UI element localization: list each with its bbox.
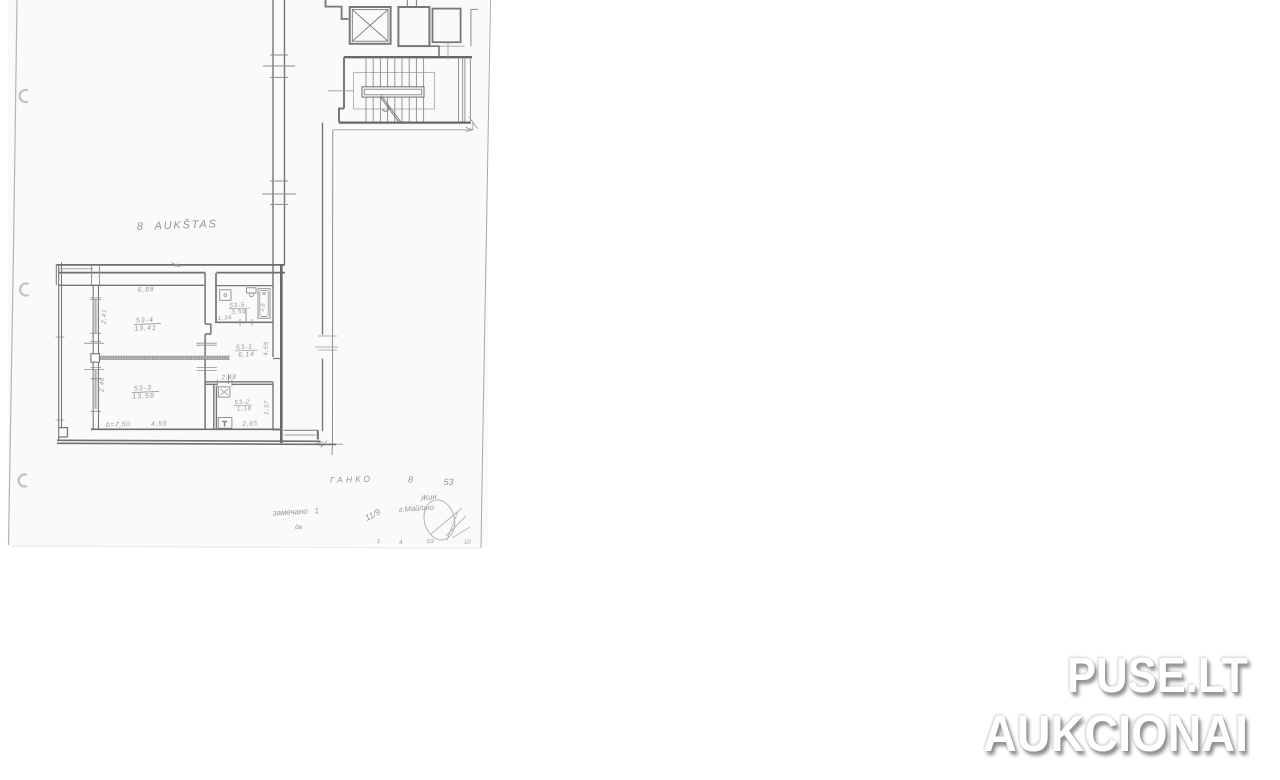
- svg-text:53-4: 53-4: [136, 317, 154, 325]
- svg-text:2,46: 2,46: [98, 377, 106, 393]
- svg-text:2,41: 2,41: [100, 309, 108, 325]
- svg-text:1: 1: [377, 538, 380, 545]
- svg-text:1,18: 1,18: [237, 405, 252, 413]
- svg-text:1,34: 1,34: [218, 314, 232, 322]
- svg-text:53-3: 53-3: [134, 385, 152, 393]
- svg-text:6,88: 6,88: [138, 286, 155, 294]
- svg-text:3,56: 3,56: [231, 308, 246, 316]
- svg-text:6,14: 6,14: [238, 351, 255, 359]
- svg-text:ГАНКО: ГАНКО: [330, 473, 374, 485]
- svg-text:b=7,50: b=7,50: [106, 421, 131, 429]
- svg-text:T: T: [223, 421, 228, 428]
- svg-text:2,65: 2,65: [241, 420, 258, 428]
- svg-text:8: 8: [408, 475, 413, 485]
- svg-text:4,55: 4,55: [151, 420, 168, 428]
- svg-text:13,58: 13,58: [132, 392, 155, 400]
- svg-text:дв: дв: [295, 524, 303, 531]
- svg-text:1,37: 1,37: [263, 400, 271, 415]
- svg-text:53: 53: [444, 477, 454, 487]
- svg-text:03: 03: [427, 538, 434, 545]
- svg-text:4,55: 4,55: [263, 341, 271, 356]
- svg-text:10: 10: [464, 539, 471, 546]
- svg-text:13,41: 13,41: [134, 325, 157, 333]
